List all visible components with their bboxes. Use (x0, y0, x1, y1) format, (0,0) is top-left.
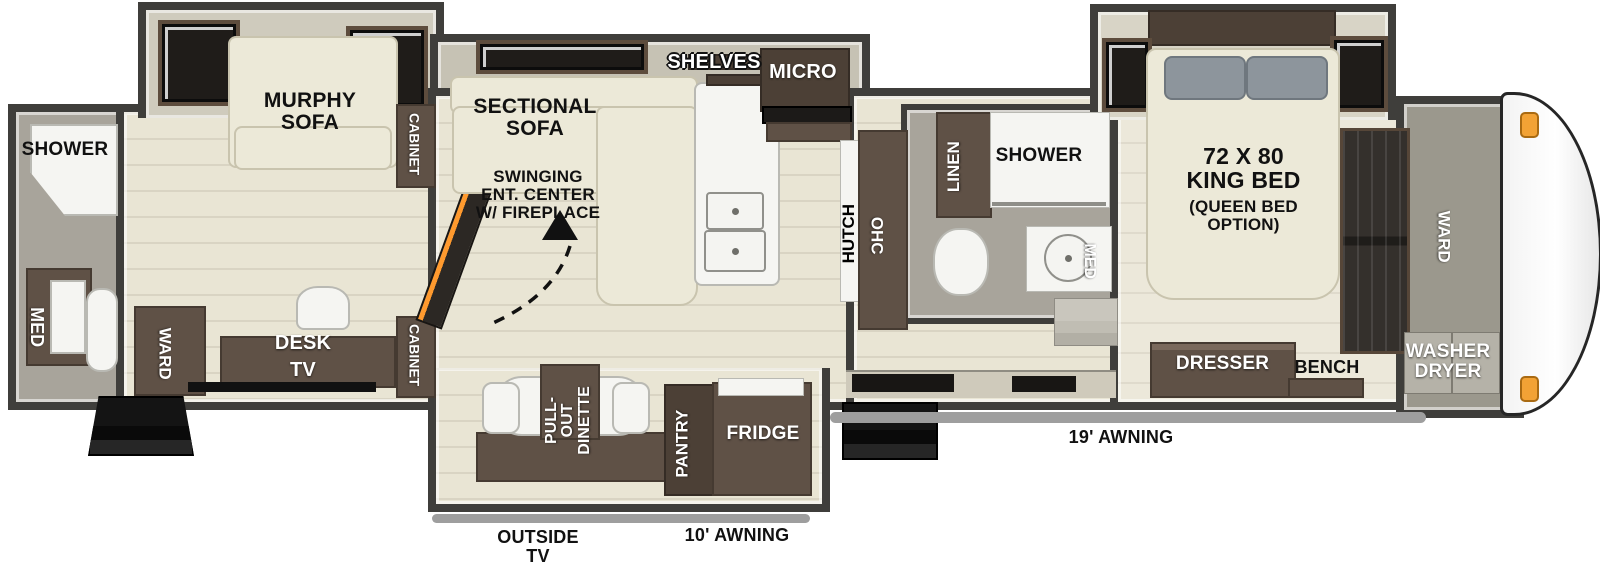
rear-toilet (86, 288, 118, 372)
awning-19-label: 19' AWNING (1046, 428, 1196, 447)
hutch-label: HUTCH (836, 178, 862, 290)
front-cap (1500, 92, 1600, 416)
dresser-label: DRESSER (1160, 354, 1285, 374)
dinette-chair-right (612, 382, 650, 434)
awning-10-label: 10' AWNING (662, 526, 812, 545)
sectional-slide-window (476, 40, 648, 74)
murphy-sofa-label: MURPHY SOFA (240, 90, 380, 134)
bedroom-steps (1054, 298, 1118, 346)
micro-label: MICRO (756, 62, 850, 83)
pantry-label: PANTRY (666, 396, 698, 492)
entry-counter-inset (852, 374, 954, 392)
marker-light-bottom (1520, 376, 1539, 402)
awning-10-bar (432, 514, 810, 523)
dinette-chair-left (482, 382, 520, 434)
bench-label: BENCH (1286, 358, 1368, 377)
shelves-label: SHELVES (658, 52, 770, 73)
entry-counter-inset-2 (1012, 376, 1076, 392)
sectional-sofa-label: SECTIONAL SOFA (460, 96, 610, 140)
ohc-label: OHC (864, 194, 890, 278)
island-sink-top (706, 192, 764, 230)
awning-19-bar (830, 412, 1426, 423)
range-counter (766, 122, 852, 142)
fifth-wheel-floorplan: SHOWER MED MURPHY SOFA WARD DESK TV CABI… (0, 0, 1600, 565)
fridge-label: FRIDGE (716, 424, 810, 444)
rear-ward-label: WARD (152, 312, 178, 396)
pullout-dinette-label: PULL-OUT DINETTE (542, 372, 594, 468)
front-ward-label: WARD (1430, 190, 1458, 284)
cabinet-top-label: CABINET (398, 102, 430, 186)
mid-shower-label: SHOWER (982, 146, 1096, 166)
bed-slide-window-left (1102, 38, 1152, 112)
pillow-left (1164, 56, 1246, 100)
desk-tv-label: DESK TV (238, 330, 368, 384)
rear-entry-steps (88, 396, 194, 456)
bed-option-label: (QUEEN BED OPTION) (1156, 198, 1331, 234)
bed-size-label: 72 X 80 KING BED (1156, 144, 1331, 192)
main-entry-steps (842, 402, 938, 460)
fridge-top-panel (718, 378, 804, 396)
pillow-right (1246, 56, 1328, 100)
bench (1288, 378, 1364, 398)
swinging-ent-center-label: SWINGING ENT. CENTER W/ FIREPLACE (448, 168, 628, 222)
linen-label: LINEN (940, 122, 966, 212)
mid-med-label: MED (1076, 218, 1102, 304)
desk-chair (296, 286, 350, 330)
mid-shower-glass (992, 202, 1106, 206)
headboard (1148, 10, 1336, 46)
mid-toilet (933, 228, 989, 296)
outside-tv-label: OUTSIDE TV (492, 528, 584, 565)
bedroom-wardrobe-slide (1340, 128, 1410, 354)
cabinet-bottom-label: CABINET (398, 314, 430, 396)
island-sink-bottom (704, 230, 766, 272)
marker-light-top (1520, 112, 1539, 138)
rear-vanity-sink (50, 280, 86, 354)
rear-med-label: MED (22, 280, 52, 374)
rear-shower-label: SHOWER (12, 140, 118, 160)
washer-dryer-label: WASHER DRYER (1392, 342, 1504, 382)
